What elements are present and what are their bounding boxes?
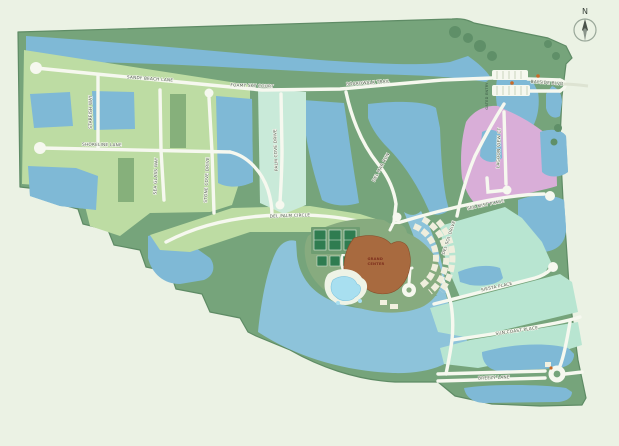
compass-n-label: N [582, 7, 588, 16]
road-vert-teal [280, 94, 282, 202]
lake [464, 385, 572, 403]
map-canvas: GRAND CENTER GATED ENTRY [0, 0, 619, 446]
sport-court [317, 256, 327, 266]
starfish-way-label: STARFISH WAY [88, 95, 93, 129]
pond [216, 96, 253, 187]
road-breezy-exit-right [565, 372, 582, 374]
compass: N [574, 7, 596, 41]
teardrop-court [503, 186, 512, 195]
parking-lot [492, 85, 530, 96]
sport-court [330, 256, 340, 266]
tree [544, 40, 552, 48]
teardrop-court [205, 89, 214, 98]
guard-house [549, 366, 552, 369]
tree [487, 51, 497, 61]
cul-de-sac [34, 142, 46, 154]
greenway-strip [118, 158, 134, 202]
tree [554, 124, 562, 132]
gated-entry-label: GATED ENTRY [485, 82, 489, 110]
shoreline-lane-label: SHORELINE LANE [82, 142, 122, 148]
pond [28, 166, 98, 210]
tree [552, 52, 560, 60]
compass-needle-south [583, 28, 587, 41]
tree [463, 33, 473, 43]
lake [540, 130, 568, 177]
breezy-roundabout-island [554, 371, 561, 378]
teardrop-court [393, 213, 402, 222]
cul-de-sac [548, 262, 558, 272]
pond [30, 92, 73, 128]
parking-lot [492, 70, 528, 80]
guard-house [510, 81, 514, 85]
resort-roundabout-island [406, 287, 411, 292]
tree [474, 40, 486, 52]
tree [551, 139, 558, 146]
gate-house [536, 74, 540, 78]
community-site-map: GRAND CENTER GATED ENTRY [0, 0, 619, 446]
greenway-strip [170, 94, 186, 148]
bay-structure [390, 304, 398, 309]
cul-de-sac [545, 191, 555, 201]
spa-pool [336, 301, 340, 305]
spa-pool [358, 299, 362, 303]
bay-structure [380, 300, 387, 305]
entry-building [545, 362, 551, 367]
clubhouse-label: GRAND CENTER [368, 257, 385, 266]
road-pink-vert [504, 112, 506, 184]
tree [449, 26, 461, 38]
cul-de-sac [276, 201, 285, 210]
cul-de-sac [30, 62, 42, 74]
